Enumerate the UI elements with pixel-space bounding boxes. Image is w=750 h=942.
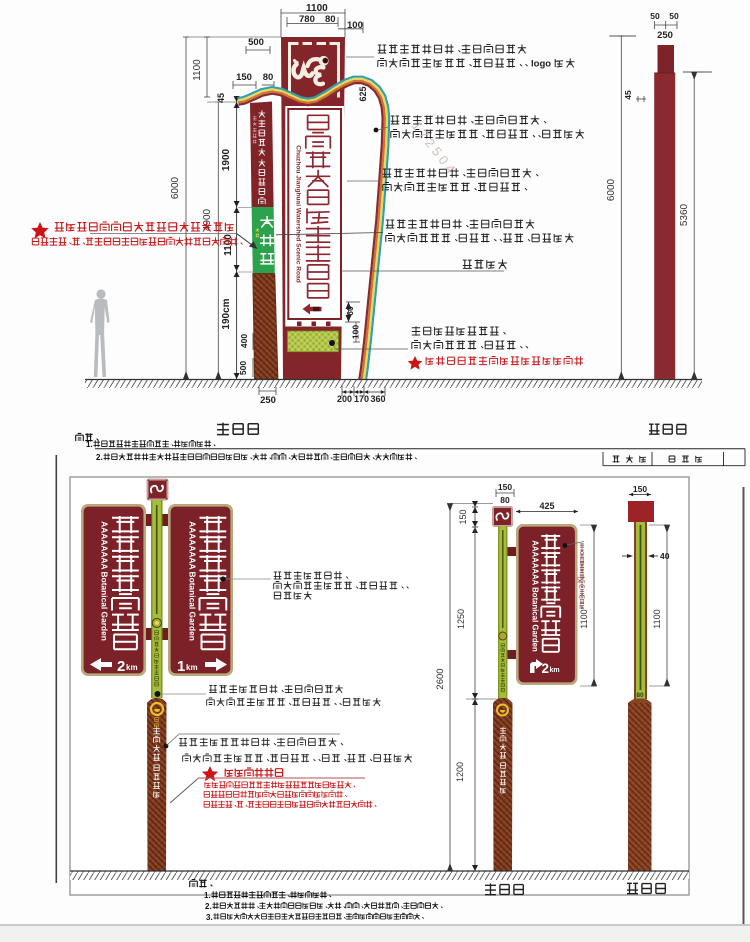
svg-text:360: 360 (371, 394, 386, 404)
svg-text:2: 2 (542, 661, 550, 676)
svg-text:780: 780 (299, 14, 315, 25)
svg-text:100: 100 (351, 325, 361, 339)
svg-text:AAAAAAAA Botanical Garden: AAAAAAAA Botanical Garden (188, 521, 198, 641)
svg-text:km: km (550, 667, 560, 674)
svg-text:500: 500 (248, 37, 264, 48)
svg-text:1100: 1100 (579, 609, 589, 628)
svg-text:3.: 3. (206, 913, 213, 922)
svg-text:km: km (126, 663, 138, 672)
svg-text:45: 45 (216, 93, 226, 103)
svg-text:1100: 1100 (652, 609, 662, 628)
svg-text:625: 625 (358, 86, 368, 101)
svg-text:60: 60 (345, 306, 355, 316)
svg-text:6000: 6000 (606, 178, 617, 201)
svg-text:500: 500 (238, 361, 248, 375)
svg-text:2600: 2600 (435, 668, 446, 689)
svg-text:150: 150 (458, 509, 468, 524)
svg-text:1.: 1. (86, 440, 93, 449)
svg-text:80: 80 (500, 495, 510, 505)
svg-text:40: 40 (660, 551, 670, 561)
svg-text:45: 45 (623, 90, 633, 100)
svg-text:2.: 2. (205, 902, 212, 911)
svg-text:170: 170 (354, 394, 369, 404)
svg-text:6000: 6000 (170, 176, 181, 199)
svg-text:150: 150 (633, 484, 647, 494)
svg-text:80: 80 (263, 72, 274, 83)
svg-text:80: 80 (325, 14, 336, 25)
svg-text:2.: 2. (96, 453, 103, 462)
svg-text:AAAAAAAA Botanical Garden: AAAAAAAA Botanical Garden (531, 540, 540, 652)
svg-text:2: 2 (117, 658, 125, 675)
svg-text:400: 400 (239, 334, 249, 348)
svg-text:1900: 1900 (221, 148, 232, 171)
svg-text:100: 100 (347, 20, 363, 31)
svg-text:1.: 1. (204, 891, 211, 900)
svg-text:AAAAAAAA Botanical Garden: AAAAAAAA Botanical Garden (100, 521, 110, 641)
svg-text:km: km (186, 663, 198, 672)
svg-text:200: 200 (337, 394, 352, 404)
svg-text:Chuzhou Jianghuai Watershed Sc: Chuzhou Jianghuai Watershed Scenic Road (295, 145, 302, 283)
svg-text:1250: 1250 (456, 609, 466, 629)
svg-text:150: 150 (236, 72, 252, 83)
svg-text:425: 425 (539, 501, 554, 511)
svg-text:1: 1 (177, 658, 185, 675)
svg-text:1100: 1100 (306, 3, 328, 14)
svg-text:50: 50 (650, 11, 660, 21)
svg-text:250: 250 (657, 30, 673, 41)
svg-text:5360: 5360 (679, 203, 690, 226)
svg-text:1100: 1100 (192, 59, 203, 81)
svg-text:250: 250 (260, 395, 276, 406)
svg-text:1200: 1200 (455, 762, 465, 782)
svg-text:50: 50 (669, 11, 679, 21)
svg-text:150: 150 (498, 482, 512, 492)
svg-text:logo: logo (531, 59, 551, 70)
svg-text:80: 80 (636, 692, 644, 699)
svg-text:190cm: 190cm (221, 298, 232, 329)
